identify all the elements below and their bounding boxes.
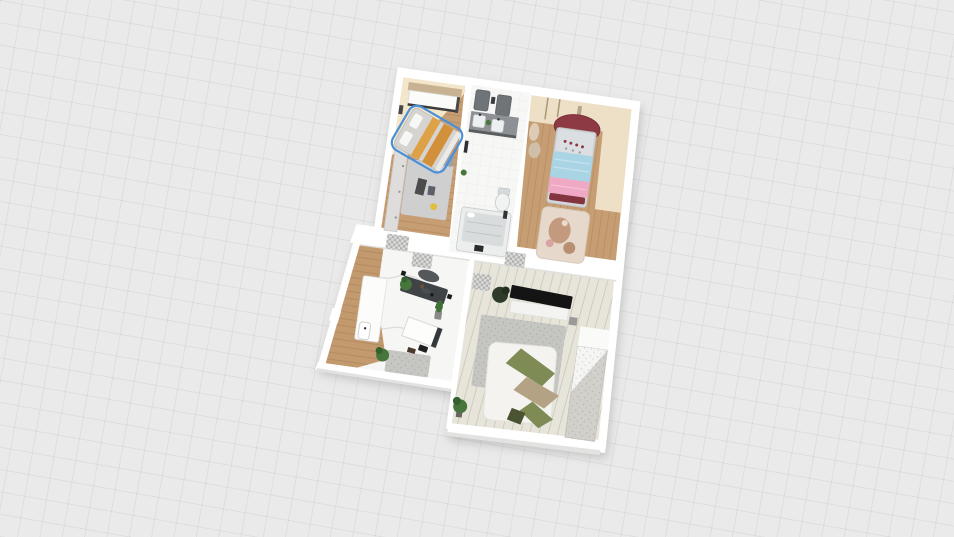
floorplan-canvas[interactable] [0, 0, 954, 537]
mirror-left[interactable] [474, 90, 491, 112]
viewport-3d[interactable] [0, 0, 954, 537]
bedroom-main-door[interactable] [385, 234, 409, 252]
sink-left[interactable] [472, 114, 486, 128]
kids-rug[interactable] [536, 206, 591, 264]
bathtub[interactable] [456, 205, 512, 258]
counter-sink [358, 322, 371, 340]
bed-sofa[interactable] [482, 342, 563, 430]
mirror-right[interactable] [495, 95, 512, 117]
bath-mat [474, 245, 484, 252]
living-room-door[interactable] [472, 273, 492, 291]
sink-right[interactable] [491, 119, 505, 133]
kitchen-door[interactable] [411, 252, 433, 269]
kids-room-door[interactable] [504, 251, 526, 268]
